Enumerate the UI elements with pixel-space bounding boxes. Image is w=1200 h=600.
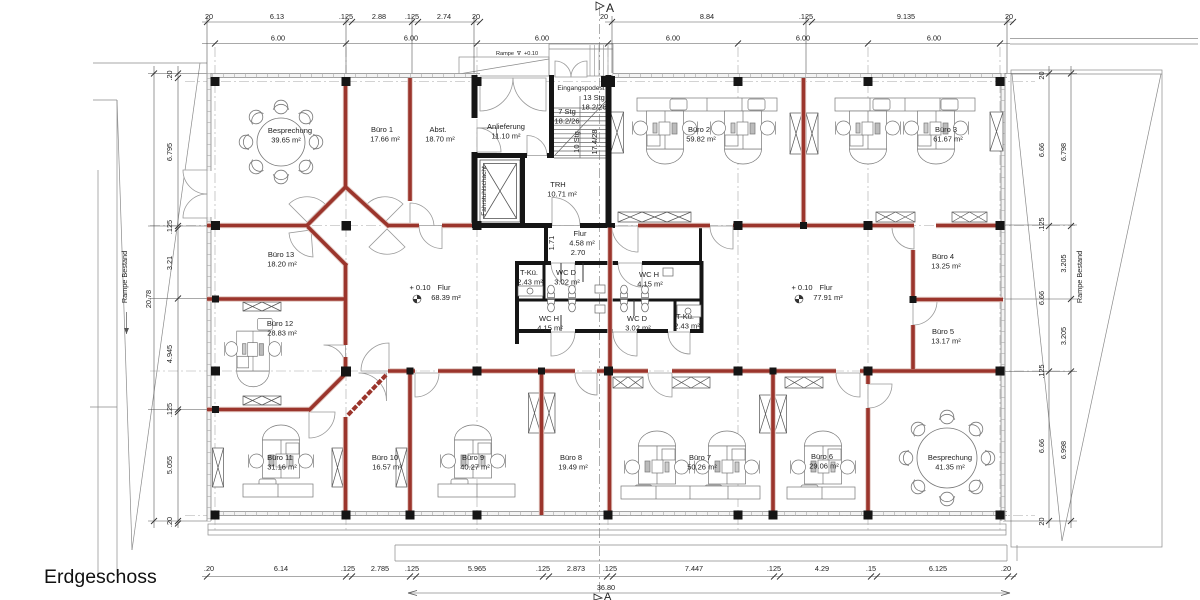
svg-text:.20: .20	[165, 517, 174, 527]
svg-text:.125: .125	[1037, 364, 1046, 378]
svg-text:6.13: 6.13	[270, 12, 284, 21]
svg-text:3.02 m²: 3.02 m²	[554, 278, 580, 287]
svg-text:4.945: 4.945	[165, 345, 174, 363]
svg-text:40.27 m²: 40.27 m²	[460, 463, 490, 472]
svg-text:.20: .20	[204, 564, 214, 573]
svg-text:6.66: 6.66	[1037, 439, 1046, 453]
svg-text:Flur: Flur	[438, 283, 451, 292]
svg-text:16.57 m²: 16.57 m²	[372, 463, 402, 472]
svg-text:20: 20	[472, 12, 480, 21]
svg-text:Fahrstuhlschacht: Fahrstuhlschacht	[481, 166, 488, 216]
svg-text:.125: .125	[339, 12, 353, 21]
svg-text:2.70: 2.70	[571, 248, 586, 257]
svg-text:Büro 6: Büro 6	[811, 452, 833, 461]
svg-text:20: 20	[1005, 12, 1013, 21]
svg-text:4.15 m²: 4.15 m²	[637, 280, 663, 289]
svg-text:4.29: 4.29	[815, 564, 829, 573]
svg-text:Erdgeschoss: Erdgeschoss	[44, 566, 157, 588]
svg-text:.125: .125	[405, 564, 419, 573]
svg-text:Büro 13: Büro 13	[268, 250, 294, 259]
svg-text:WC D: WC D	[556, 268, 577, 277]
svg-text:Büro 8: Büro 8	[560, 453, 582, 462]
svg-text:39.65 m²: 39.65 m²	[271, 136, 301, 145]
svg-text:6.00: 6.00	[927, 34, 941, 43]
svg-text:Büro 11: Büro 11	[267, 453, 293, 462]
svg-text:6.798: 6.798	[1059, 143, 1068, 161]
svg-text:20: 20	[1037, 71, 1046, 79]
svg-text:77.91 m²: 77.91 m²	[813, 293, 843, 302]
svg-text:WC H: WC H	[639, 270, 659, 279]
svg-text:11.10 m²: 11.10 m²	[491, 132, 521, 141]
svg-text:T-Kü.: T-Kü.	[676, 312, 694, 321]
svg-text:.20: .20	[1001, 564, 1011, 573]
svg-text:Büro 9: Büro 9	[462, 453, 484, 462]
svg-text:5.965: 5.965	[468, 564, 486, 573]
svg-text:.125: .125	[799, 12, 813, 21]
svg-text:10.71 m²: 10.71 m²	[547, 190, 577, 199]
svg-text:29.06 m²: 29.06 m²	[809, 462, 839, 471]
svg-text:6.66: 6.66	[1037, 143, 1046, 157]
svg-text:3.02 m²: 3.02 m²	[625, 324, 651, 333]
svg-text:28.83 m²: 28.83 m²	[267, 329, 297, 338]
svg-text:Büro 5: Büro 5	[932, 327, 954, 336]
svg-text:Flur: Flur	[574, 229, 587, 238]
svg-text:6.998: 6.998	[1059, 441, 1068, 459]
svg-text:17.4/28: 17.4/28	[590, 129, 599, 154]
svg-text:T-Kü.: T-Kü.	[520, 268, 538, 277]
svg-text:61.67 m²: 61.67 m²	[933, 135, 963, 144]
svg-text:17.66 m²: 17.66 m²	[370, 135, 400, 144]
svg-text:6.14: 6.14	[274, 564, 288, 573]
svg-text:1.71: 1.71	[547, 236, 556, 251]
svg-text:.125: .125	[767, 564, 781, 573]
svg-text:A: A	[604, 591, 612, 600]
svg-text:9.135: 9.135	[897, 12, 915, 21]
svg-text:Büro 2: Büro 2	[688, 125, 710, 134]
svg-text:Besprechung: Besprechung	[928, 453, 972, 462]
svg-text:Besprechung: Besprechung	[268, 126, 312, 135]
svg-text:3.205: 3.205	[1059, 327, 1068, 345]
svg-text:Rampe ∇ +0.10: Rampe ∇ +0.10	[496, 50, 538, 57]
svg-text:2.43 m²: 2.43 m²	[517, 278, 543, 287]
svg-text:+ 0.10: + 0.10	[409, 283, 430, 292]
svg-text:Büro 12: Büro 12	[267, 319, 293, 328]
svg-text:6.00: 6.00	[796, 34, 810, 43]
svg-text:20: 20	[1037, 517, 1046, 525]
svg-text:20.78: 20.78	[144, 290, 153, 308]
svg-text:4.15 m²: 4.15 m²	[537, 324, 563, 333]
svg-text:2.74: 2.74	[437, 12, 451, 21]
svg-text:WC H: WC H	[539, 314, 559, 323]
svg-text:4.58 m²: 4.58 m²	[569, 239, 595, 248]
svg-text:.125: .125	[405, 12, 419, 21]
svg-text:2.88: 2.88	[372, 12, 386, 21]
svg-text:59.82 m²: 59.82 m²	[686, 135, 716, 144]
svg-text:31.16 m²: 31.16 m²	[267, 463, 297, 472]
svg-text:Büro 10: Büro 10	[372, 453, 398, 462]
svg-text:18.2/26: 18.2/26	[581, 103, 606, 112]
svg-text:Anlieferung: Anlieferung	[487, 122, 525, 131]
svg-text:8.84: 8.84	[700, 12, 714, 21]
svg-text:6.00: 6.00	[404, 34, 418, 43]
svg-text:68.39 m²: 68.39 m²	[431, 293, 461, 302]
svg-text:.125: .125	[341, 564, 355, 573]
svg-text:.125: .125	[165, 403, 174, 417]
svg-text:2.785: 2.785	[371, 564, 389, 573]
svg-text:3.205: 3.205	[1059, 254, 1068, 272]
svg-text:7 Stg: 7 Stg	[558, 107, 576, 116]
svg-text:Büro 1: Büro 1	[371, 125, 393, 134]
svg-text:A: A	[606, 1, 614, 15]
svg-text:6.125: 6.125	[929, 564, 947, 573]
svg-text:2.43 m²: 2.43 m²	[674, 322, 700, 331]
svg-text:Büro 4: Büro 4	[932, 252, 954, 261]
svg-text:Eingangspodest: Eingangspodest	[557, 85, 604, 92]
svg-text:18.2/26: 18.2/26	[554, 117, 579, 126]
svg-text:7.447: 7.447	[685, 564, 703, 573]
svg-text:.125: .125	[1037, 217, 1046, 231]
svg-text:19.49 m²: 19.49 m²	[558, 463, 588, 472]
svg-text:13.25 m²: 13.25 m²	[931, 262, 961, 271]
svg-text:WC D: WC D	[627, 314, 648, 323]
svg-text:Rampe Bestand: Rampe Bestand	[1075, 251, 1084, 303]
svg-text:13.17 m²: 13.17 m²	[931, 337, 961, 346]
svg-text:.125: .125	[165, 220, 174, 234]
svg-text:Flur: Flur	[820, 283, 833, 292]
svg-text:18.70 m²: 18.70 m²	[425, 135, 455, 144]
svg-text:18.20 m²: 18.20 m²	[267, 260, 297, 269]
svg-text:6.00: 6.00	[271, 34, 285, 43]
svg-text:Büro 7: Büro 7	[689, 453, 711, 462]
svg-text:TRH: TRH	[550, 180, 565, 189]
svg-text:6.00: 6.00	[535, 34, 549, 43]
svg-text:Rampe Bestand: Rampe Bestand	[120, 251, 129, 303]
svg-text:6.00: 6.00	[666, 34, 680, 43]
svg-text:.20: .20	[165, 70, 174, 80]
svg-text:.125: .125	[536, 564, 550, 573]
svg-text:.15: .15	[866, 564, 876, 573]
svg-text:6.795: 6.795	[165, 143, 174, 161]
svg-text:Büro 3: Büro 3	[935, 125, 957, 134]
svg-text:5.055: 5.055	[165, 456, 174, 474]
svg-text:2.873: 2.873	[567, 564, 585, 573]
svg-text:6.66: 6.66	[1037, 291, 1046, 305]
svg-text:+ 0.10: + 0.10	[791, 283, 812, 292]
svg-text:50.26 m²: 50.26 m²	[687, 463, 717, 472]
svg-text:.125: .125	[603, 564, 617, 573]
svg-text:10 Stg: 10 Stg	[572, 131, 581, 153]
svg-text:13 Stg: 13 Stg	[583, 93, 605, 102]
svg-text:20: 20	[205, 12, 213, 21]
svg-text:41.35 m²: 41.35 m²	[935, 463, 965, 472]
svg-text:3.21: 3.21	[165, 256, 174, 270]
svg-text:Abst.: Abst.	[429, 125, 446, 134]
